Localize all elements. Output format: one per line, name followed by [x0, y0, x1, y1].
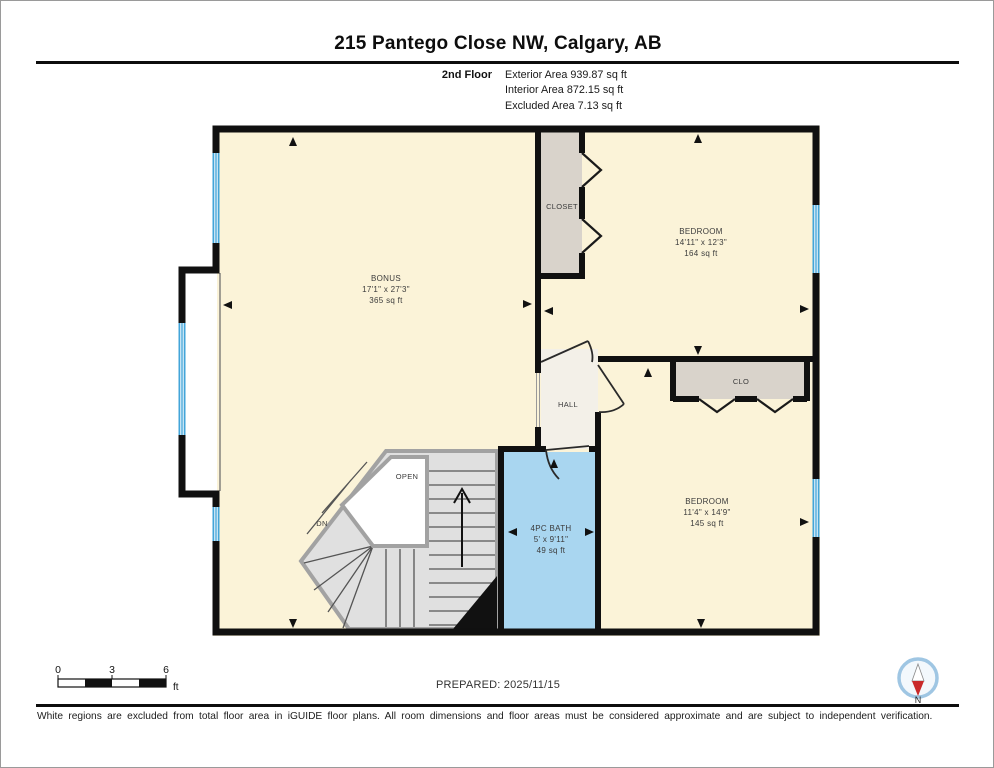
window-bedroom-bottom — [813, 479, 820, 537]
bath-dims: 5' x 9'11" — [534, 535, 569, 544]
window-bedroom-top — [813, 205, 820, 273]
bonus-name: BONUS — [371, 274, 401, 283]
closet-label: CLOSET — [546, 202, 578, 211]
scale-tick-3: 3 — [109, 664, 115, 676]
bedroom-top-name: BEDROOM — [679, 227, 722, 236]
bath-name: 4PC BATH — [531, 524, 572, 533]
disclaimer-text: White regions are excluded from total fl… — [37, 711, 959, 722]
bath-area: 49 sq ft — [537, 546, 566, 555]
bedroom-bottom-area: 145 sq ft — [690, 519, 724, 528]
bedroom-bottom-name: BEDROOM — [685, 497, 728, 506]
bedroom-bottom-dims: 11'4" x 14'9" — [683, 508, 730, 517]
window-bay — [179, 323, 186, 435]
bedroom-top-area: 164 sq ft — [684, 249, 718, 258]
footer-divider — [36, 704, 959, 707]
excluded-bay — [185, 273, 217, 491]
hall-fill — [541, 349, 598, 449]
bonus-area: 365 sq ft — [369, 296, 403, 305]
hall-label: HALL — [558, 400, 578, 409]
window-bonus-lower — [213, 507, 220, 541]
dn-label: DN — [316, 519, 327, 528]
clo-label: CLO — [733, 377, 749, 386]
bonus-dims: 17'1" x 27'3" — [362, 285, 410, 294]
scale-tick-6: 6 — [163, 664, 169, 676]
scale-tick-0: 0 — [55, 664, 61, 676]
open-label: OPEN — [396, 472, 418, 481]
window-bonus-upper — [213, 153, 220, 243]
floorplan-page: 215 Pantego Close NW, Calgary, AB 2nd Fl… — [0, 0, 994, 768]
prepared-date: PREPARED: 2025/11/15 — [1, 679, 994, 691]
floorplan-drawing: BONUS 17'1" x 27'3" 365 sq ft BEDROOM 14… — [1, 1, 994, 768]
bedroom-top-dims: 14'11" x 12'3" — [675, 238, 727, 247]
